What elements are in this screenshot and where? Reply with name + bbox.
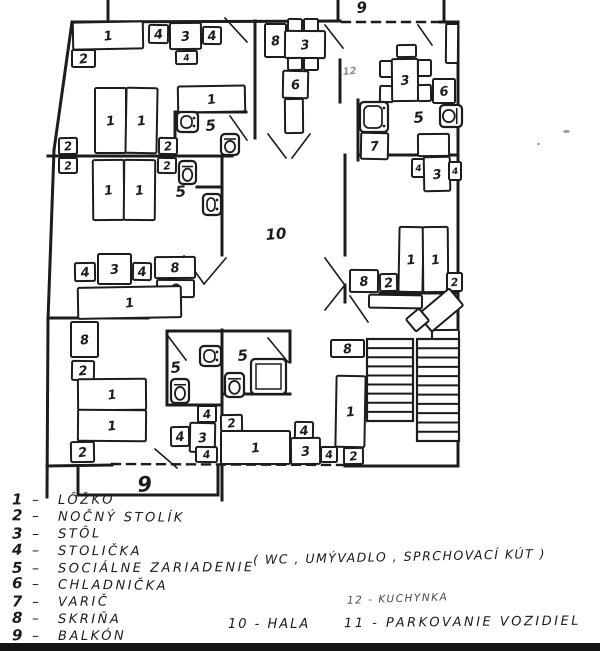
furniture-wardrobe-number: 8: [342, 342, 353, 358]
furniture-table-number: 3: [197, 431, 207, 447]
staircase: [417, 339, 459, 441]
sink-body: [203, 194, 221, 215]
furniture-table-number: 3: [180, 29, 191, 45]
furniture-bed: 1: [221, 431, 290, 464]
furniture-chair: 4: [196, 447, 217, 462]
furniture-bed: 1: [398, 227, 423, 292]
furniture-wardrobe: 8: [155, 257, 195, 278]
sink-tap-dot: [216, 351, 219, 354]
furniture-bed-number: 1: [103, 29, 114, 45]
furniture-bed-number: 1: [103, 183, 114, 199]
furniture-bed: 1: [78, 410, 146, 442]
furniture-bed: 1: [125, 88, 157, 154]
room-label-12: 12: [342, 66, 357, 78]
furniture-night-table-number: 2: [349, 449, 359, 464]
furniture-fridge-number: 6: [290, 78, 300, 94]
sink-tap-dot: [383, 125, 386, 128]
furniture-item-outline: [304, 58, 318, 70]
legend-label: BALKÓN: [58, 629, 126, 644]
toilet-fixture: [179, 161, 196, 184]
furniture-chair-number: 4: [201, 407, 212, 422]
furniture-chair-number: 4: [206, 29, 217, 45]
furniture-night-table-number: 2: [227, 416, 237, 431]
legend-number: 4: [12, 541, 32, 559]
furniture-chair-number: 4: [174, 430, 186, 446]
furniture-night-table: 2: [159, 138, 177, 154]
toilet-fixture: [171, 379, 189, 403]
furniture-bed: 1: [423, 227, 449, 292]
furniture-table: 3: [291, 438, 320, 464]
staircase-outline: [367, 339, 413, 421]
furniture-bed-number: 1: [107, 388, 118, 404]
furniture-chair-number: 4: [324, 448, 334, 462]
furniture-bed: 1: [73, 21, 143, 49]
furniture-chair-number: 4: [152, 27, 163, 43]
door-swing: [292, 134, 310, 158]
furniture-table-number: 3: [432, 167, 443, 183]
furniture-item-outline: [369, 295, 422, 309]
door-swing: [204, 258, 226, 284]
sink-tap-dot: [216, 208, 219, 211]
furniture-wardrobe: 8: [265, 24, 286, 57]
wall-segment: [48, 150, 54, 320]
furniture-table: 3: [392, 59, 418, 101]
furniture-chair: 4: [449, 162, 461, 180]
furniture-night-table-number: 2: [78, 52, 89, 68]
door-swing: [350, 296, 368, 322]
furniture-item: [418, 134, 449, 156]
furniture-bed-number: 1: [107, 419, 117, 435]
sink-tap-dot: [193, 117, 196, 120]
furniture-night-table-number: 2: [78, 364, 88, 380]
sink-fixture: [177, 112, 198, 132]
door-swing: [418, 25, 432, 45]
wall-segment: [54, 22, 72, 150]
sink-fixture: [200, 346, 221, 366]
furniture-bed-number: 1: [134, 183, 144, 199]
furniture-bed-number: 1: [124, 296, 135, 312]
furniture-night-table: 2: [59, 138, 77, 154]
sink-tap-dot: [383, 107, 386, 110]
furniture-item-outline: [418, 85, 431, 101]
furniture-item-outline: [446, 24, 458, 63]
furniture-chair: 4: [133, 263, 151, 281]
sink-tap-dot: [216, 199, 219, 202]
sink-fixture: [203, 194, 221, 215]
door-swing: [268, 134, 286, 158]
door-swing: [325, 25, 343, 48]
furniture-chair: 4: [198, 406, 216, 422]
legend-number: 8: [12, 609, 32, 627]
furniture-night-table-number: 2: [63, 139, 73, 154]
scan-speckle: [563, 130, 570, 133]
furniture-night-table: 2: [59, 158, 77, 173]
furniture-chair: 4: [176, 51, 197, 65]
furniture-bed-number: 1: [430, 253, 441, 269]
legend-item-9: 9–BALKÓN: [12, 625, 126, 645]
furniture-night-table: 2: [344, 448, 363, 464]
furniture-item-outline: [288, 58, 302, 70]
furniture-bed-number: 1: [250, 441, 261, 457]
legend-number: 2: [12, 506, 32, 524]
furniture-wardrobe-number: 8: [79, 333, 90, 349]
furniture-item: [418, 85, 431, 101]
furniture-item-outline: [397, 45, 416, 57]
furniture-wardrobe-number: 8: [359, 274, 369, 290]
furniture-bed-number: 1: [406, 253, 416, 269]
furniture-table: 3: [424, 157, 451, 191]
scan-artifact-bar: [0, 643, 600, 651]
room-label-10: 10: [265, 224, 287, 244]
room-label-9: 9: [356, 0, 368, 17]
furniture-chair: 4: [321, 447, 337, 462]
furniture-chair-number: 4: [414, 164, 422, 175]
furniture-chair-number: 4: [79, 265, 91, 281]
furniture-bed: 1: [178, 85, 245, 112]
furniture-item: [446, 24, 458, 63]
furniture-night-table: 2: [72, 50, 95, 68]
legend-dash: –: [32, 628, 58, 644]
door-swing: [325, 286, 344, 310]
room-label-5: 5: [170, 358, 182, 377]
furniture-night-table: 2: [380, 274, 397, 292]
legend-number: 9: [12, 626, 32, 644]
furniture-item: [304, 58, 318, 70]
furniture-table-number: 3: [109, 262, 120, 278]
toilet-fixture: [225, 373, 244, 397]
furniture-item: [397, 45, 416, 57]
room-label-5: 5: [413, 108, 425, 127]
furniture-bed: 1: [335, 376, 365, 447]
furniture-table-number: 3: [400, 73, 411, 89]
sink-tap-dot: [216, 359, 219, 362]
furniture-item-outline: [418, 134, 449, 156]
legend-item-10-hala: 10 - HALA: [228, 617, 310, 632]
furniture-item: [418, 60, 431, 76]
furniture-night-table: 2: [71, 442, 94, 462]
furniture-item-outline: [288, 19, 302, 31]
furniture-item: [285, 99, 303, 133]
furniture-cooker: 7: [361, 133, 388, 159]
furniture-bed-number: 1: [136, 114, 146, 130]
scan-speckle: [537, 143, 540, 145]
furniture-chair: 4: [149, 25, 168, 44]
furniture-wardrobe-number: 8: [270, 34, 281, 50]
furniture-bed: 1: [93, 160, 125, 220]
furniture-chair-number: 4: [450, 167, 458, 178]
furniture-wardrobe-number: 8: [170, 261, 181, 277]
furniture-item: [369, 295, 422, 309]
toilet-fixture: [440, 105, 462, 127]
furniture-item-outline: [285, 99, 303, 133]
room-label-5: 5: [237, 346, 249, 365]
furniture-chair-number: 4: [182, 53, 190, 64]
furniture-item: [288, 58, 302, 70]
furniture-night-table-number: 2: [163, 159, 172, 173]
furniture-bed-number: 1: [206, 92, 217, 108]
furniture-bed: 1: [78, 379, 146, 411]
furniture-chair: 4: [203, 27, 221, 45]
staircase: [367, 339, 413, 421]
furniture-table: 3: [98, 254, 131, 284]
furniture-night-table: 2: [72, 361, 94, 380]
furniture-table-number: 3: [300, 38, 310, 54]
furniture-table: 3: [285, 31, 325, 58]
room-label-5: 5: [205, 116, 217, 135]
furniture-night-table-number: 2: [383, 276, 394, 292]
furniture-table: 3: [170, 23, 201, 49]
furniture-fridge: 6: [283, 71, 308, 98]
furniture-fridge: 6: [433, 79, 455, 103]
furniture-fridge-number: 6: [439, 84, 450, 100]
shower-fixture: [251, 359, 286, 394]
furniture-night-table: 2: [221, 415, 242, 431]
furniture-item: [288, 19, 302, 31]
sink-fixture: [360, 102, 388, 132]
furniture-bed: 1: [78, 286, 182, 319]
furniture-chair-number: 4: [136, 265, 147, 281]
furniture-wardrobe: 8: [71, 322, 98, 357]
door-swing: [325, 258, 344, 284]
door-swing: [168, 336, 186, 360]
wall-segment: [47, 320, 48, 497]
furniture-item-outline: [304, 19, 318, 31]
staircase-outline: [417, 339, 459, 441]
furniture-item-outline: [418, 60, 431, 76]
furniture-night-table: 2: [158, 158, 176, 173]
furniture-chair: 4: [75, 263, 95, 282]
room-label-5: 5: [175, 182, 187, 201]
legend-number: 6: [12, 574, 32, 592]
furniture-item: [304, 19, 318, 31]
furniture-night-table-number: 2: [163, 139, 173, 154]
furniture-wardrobe: 8: [350, 270, 378, 292]
furniture-bed-number: 1: [105, 114, 116, 130]
legend-item-11-parkovanie: 11 - PARKOVANIE VOZIDIEL: [344, 614, 581, 631]
furniture-bed-number: 1: [345, 405, 355, 421]
sink-tap-dot: [193, 125, 196, 128]
furniture-bed: 1: [95, 88, 126, 153]
furniture-chair-number: 4: [201, 448, 211, 462]
furniture-chair: 4: [171, 427, 189, 446]
furniture-bed: 1: [124, 160, 156, 220]
toilet-fixture: [221, 134, 239, 155]
furniture-table-number: 3: [300, 444, 311, 460]
furniture-wardrobe: 8: [331, 340, 364, 358]
furniture-night-table-number: 2: [77, 445, 88, 461]
scanned-floor-plan-page: 1243441122122114348818211243442143428363…: [0, 0, 600, 651]
legend-dash: –: [32, 543, 58, 559]
